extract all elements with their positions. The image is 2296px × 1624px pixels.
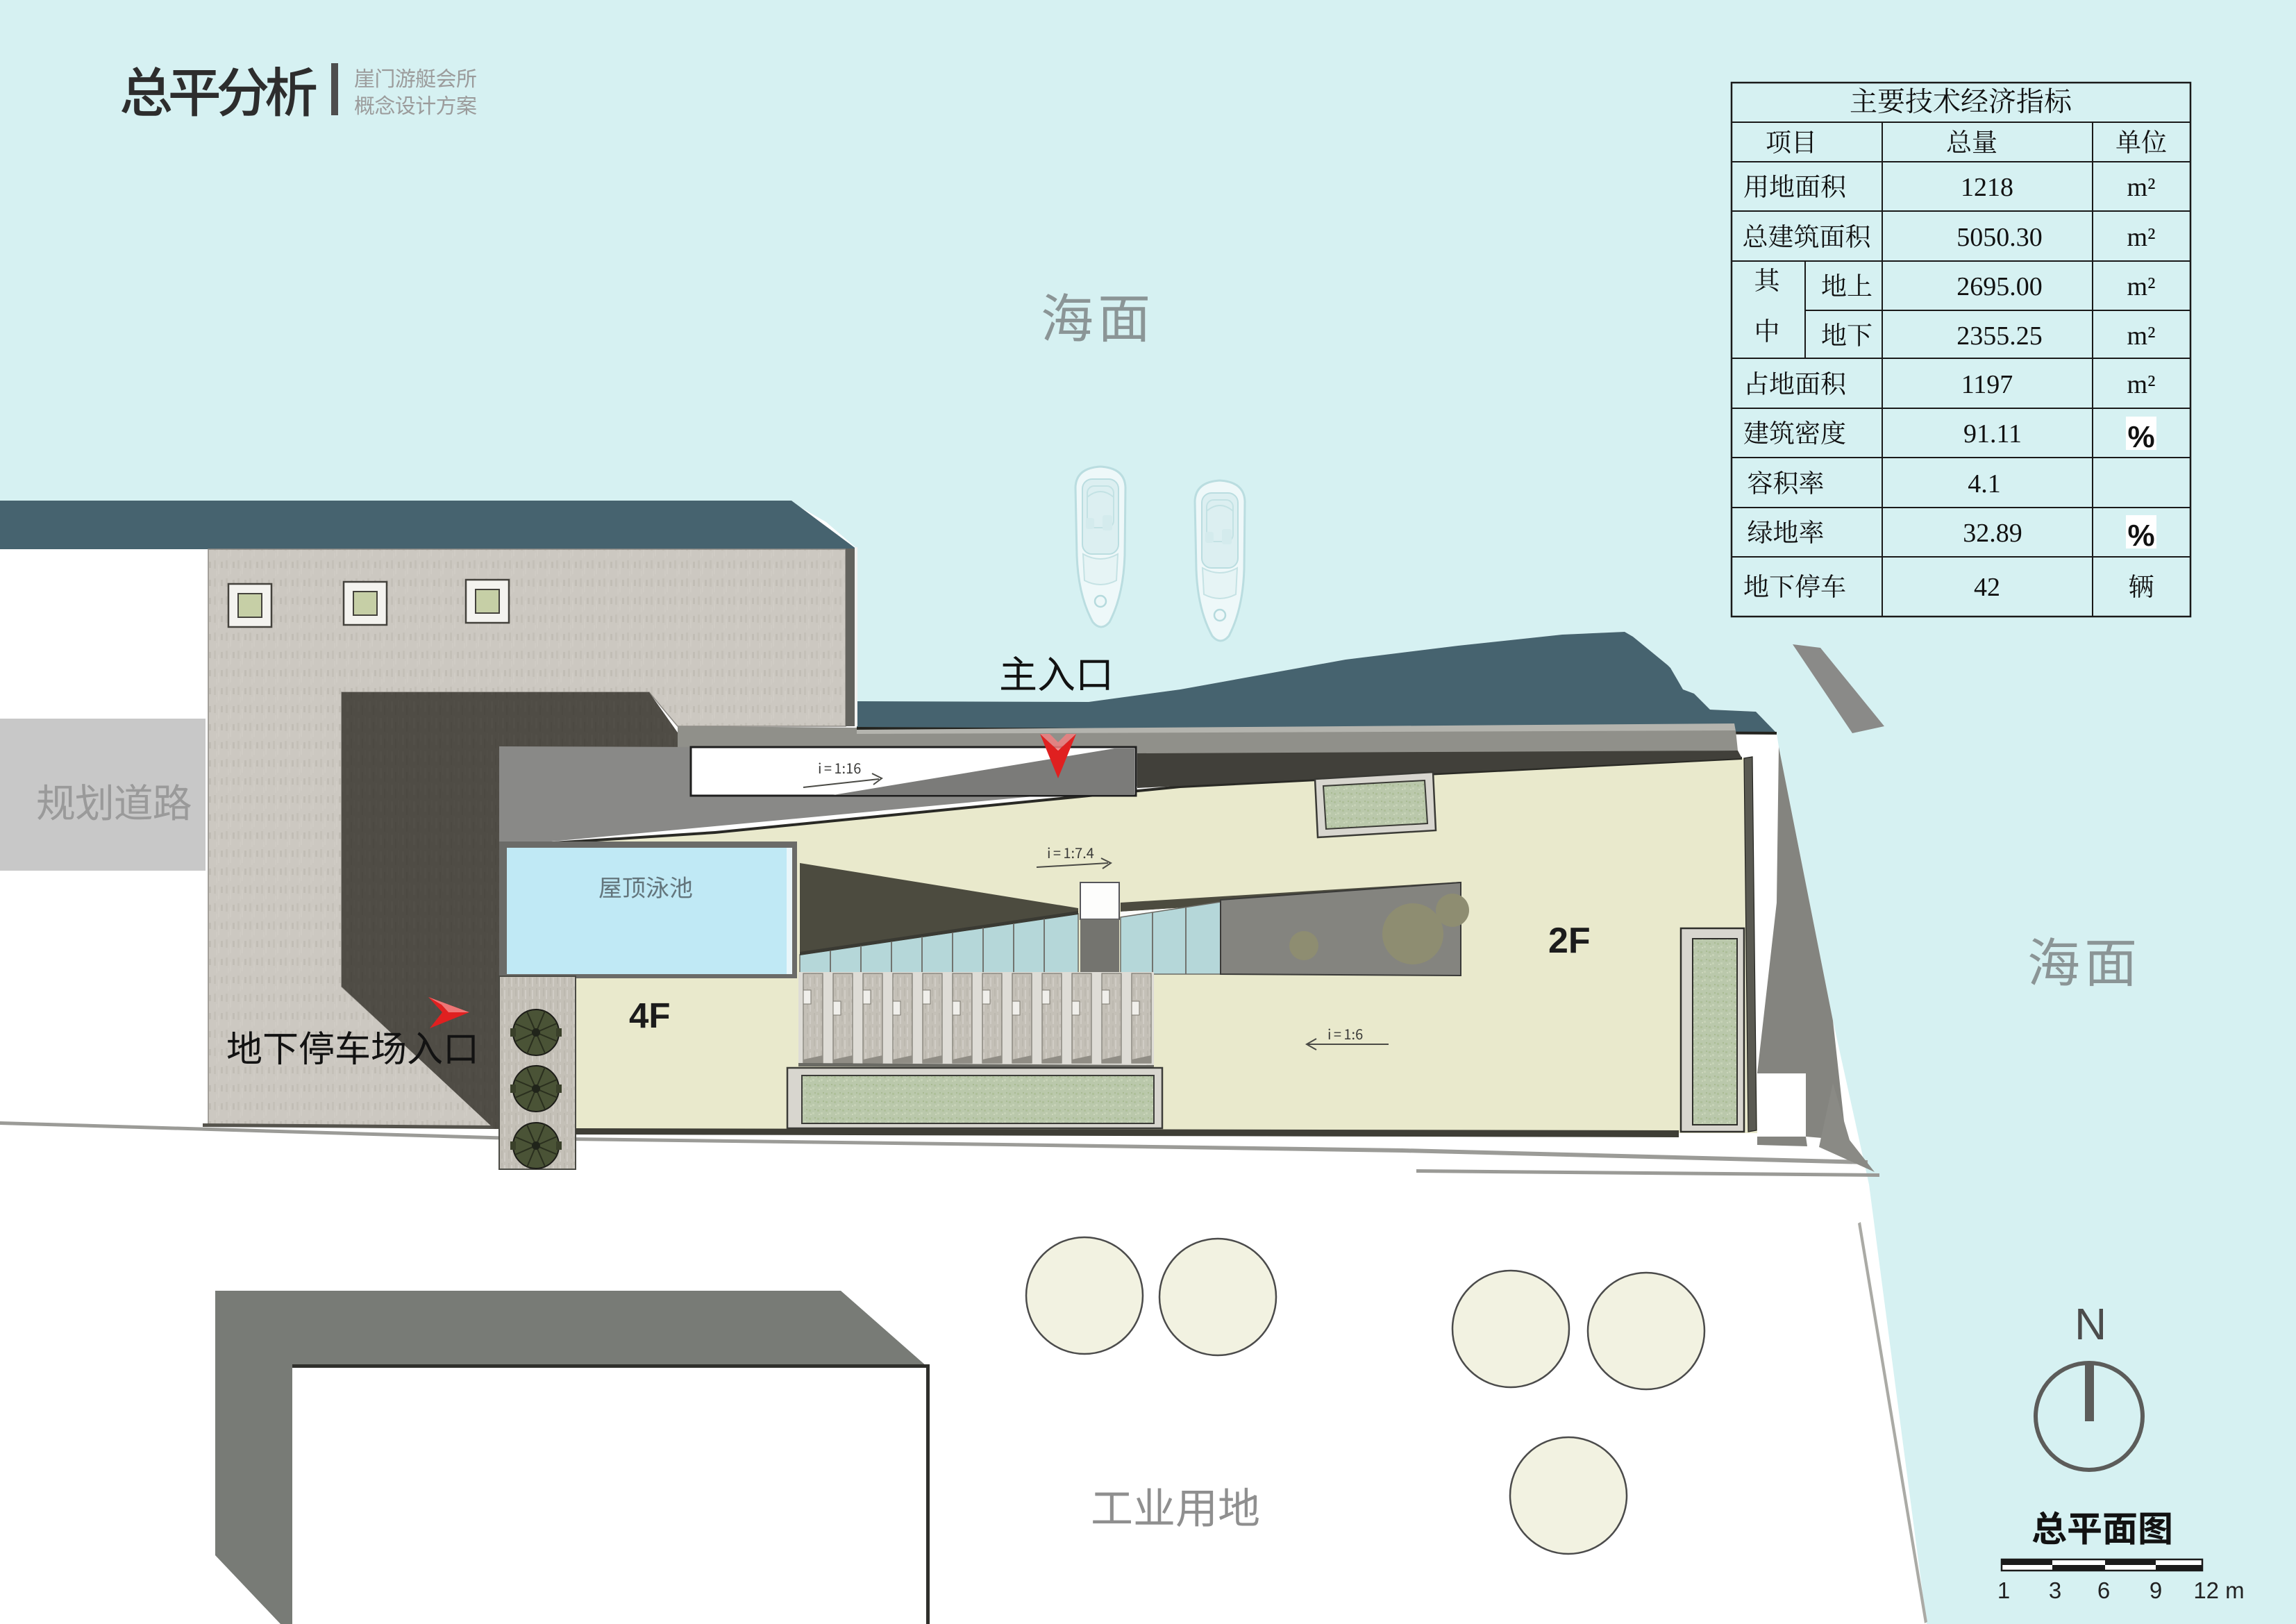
svg-text:1197: 1197 bbox=[1961, 370, 2013, 399]
svg-text:3: 3 bbox=[2049, 1577, 2061, 1603]
svg-text:2F: 2F bbox=[1548, 921, 1591, 961]
svg-text:m²: m² bbox=[2127, 272, 2156, 301]
svg-text:N: N bbox=[2075, 1299, 2106, 1349]
svg-text:12 m: 12 m bbox=[2193, 1577, 2244, 1603]
svg-text:m²: m² bbox=[2127, 223, 2156, 252]
svg-text:%: % bbox=[2127, 420, 2154, 454]
svg-text:1: 1 bbox=[1997, 1577, 2010, 1603]
svg-text:4F: 4F bbox=[629, 996, 671, 1035]
svg-text:5050.30: 5050.30 bbox=[1956, 223, 2043, 252]
svg-text:m²: m² bbox=[2127, 173, 2156, 202]
svg-text:1218: 1218 bbox=[1961, 173, 2013, 202]
svg-text:m²: m² bbox=[2127, 321, 2156, 351]
svg-text:2355.25: 2355.25 bbox=[1956, 321, 2043, 351]
svg-text:42: 42 bbox=[1974, 573, 2000, 602]
svg-text:6: 6 bbox=[2097, 1577, 2110, 1603]
svg-text:m²: m² bbox=[2127, 370, 2156, 399]
svg-text:2695.00: 2695.00 bbox=[1956, 272, 2043, 301]
svg-text:9: 9 bbox=[2150, 1577, 2162, 1603]
svg-text:4.1: 4.1 bbox=[1968, 469, 2001, 499]
svg-text:%: % bbox=[2127, 519, 2154, 553]
svg-text:91.11: 91.11 bbox=[1963, 419, 2022, 449]
svg-text:32.89: 32.89 bbox=[1963, 519, 2022, 548]
